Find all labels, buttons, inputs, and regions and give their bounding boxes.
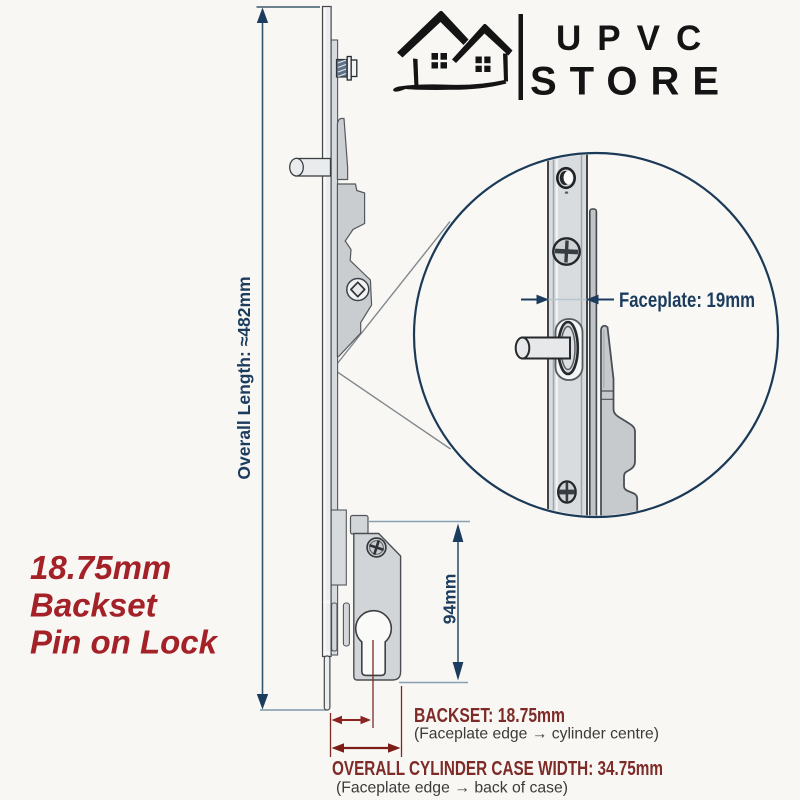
- svg-text:OVERALL CYLINDER CASE WIDTH: 3: OVERALL CYLINDER CASE WIDTH: 34.75mm: [332, 758, 663, 780]
- svg-text:(Faceplate edge → cylinder cen: (Faceplate edge → cylinder centre): [414, 726, 659, 743]
- svg-text:UPVC: UPVC: [556, 19, 717, 58]
- svg-text:Faceplate: 19mm: Faceplate: 19mm: [619, 288, 755, 312]
- svg-text:Overall Length: ≈482mm: Overall Length: ≈482mm: [234, 276, 254, 479]
- svg-text:BACKSET: 18.75mm: BACKSET: 18.75mm: [414, 705, 565, 727]
- svg-text:(Faceplate edge → back of case: (Faceplate edge → back of case): [336, 780, 568, 797]
- svg-text:94mm: 94mm: [440, 574, 460, 625]
- svg-text:Pin on Lock: Pin on Lock: [30, 624, 219, 661]
- svg-text:STORE: STORE: [530, 60, 732, 104]
- svg-text:18.75mm: 18.75mm: [30, 549, 171, 586]
- svg-text:Backset: Backset: [30, 587, 159, 624]
